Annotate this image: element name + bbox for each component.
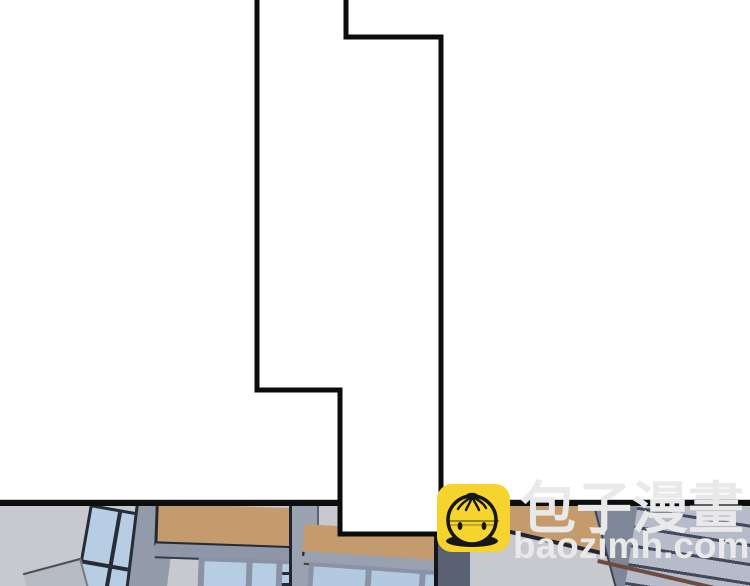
- baozi-bun-icon: [437, 484, 510, 552]
- panel-outline-path: [257, 0, 441, 534]
- bun-eye: [482, 522, 487, 530]
- bun-body: [448, 496, 496, 544]
- comic-page: 包子漫畫 baozimh.com: [0, 0, 750, 586]
- bun-eye: [458, 522, 463, 530]
- watermark-url-text: baozimh.com: [513, 527, 749, 564]
